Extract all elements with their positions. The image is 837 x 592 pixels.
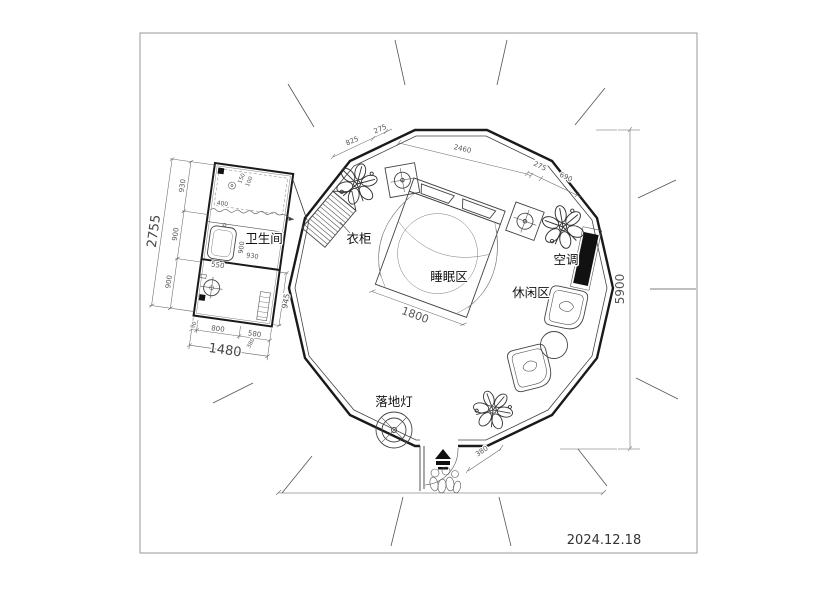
dim-930-inner: 930	[246, 251, 259, 261]
floor-plan-svg: 825 275 2460 45 275 690 5900 1800	[0, 0, 837, 592]
floor-plan-page: 825 275 2460 45 275 690 5900 1800	[0, 0, 837, 592]
wall-post	[199, 294, 206, 301]
date-label: 2024.12.18	[567, 533, 641, 548]
room-label-wardrobe: 衣柜	[346, 231, 371, 246]
room-label-sleeping: 睡眠区	[430, 269, 468, 284]
wall-post	[218, 168, 225, 175]
room-label-floor-lamp: 落地灯	[375, 394, 413, 409]
room-label-ac: 空调	[553, 252, 578, 267]
room-label-leisure: 休闲区	[512, 285, 550, 300]
dim-height-5900: 5900	[613, 274, 627, 305]
room-label-bathroom: 卫生间	[245, 231, 283, 246]
